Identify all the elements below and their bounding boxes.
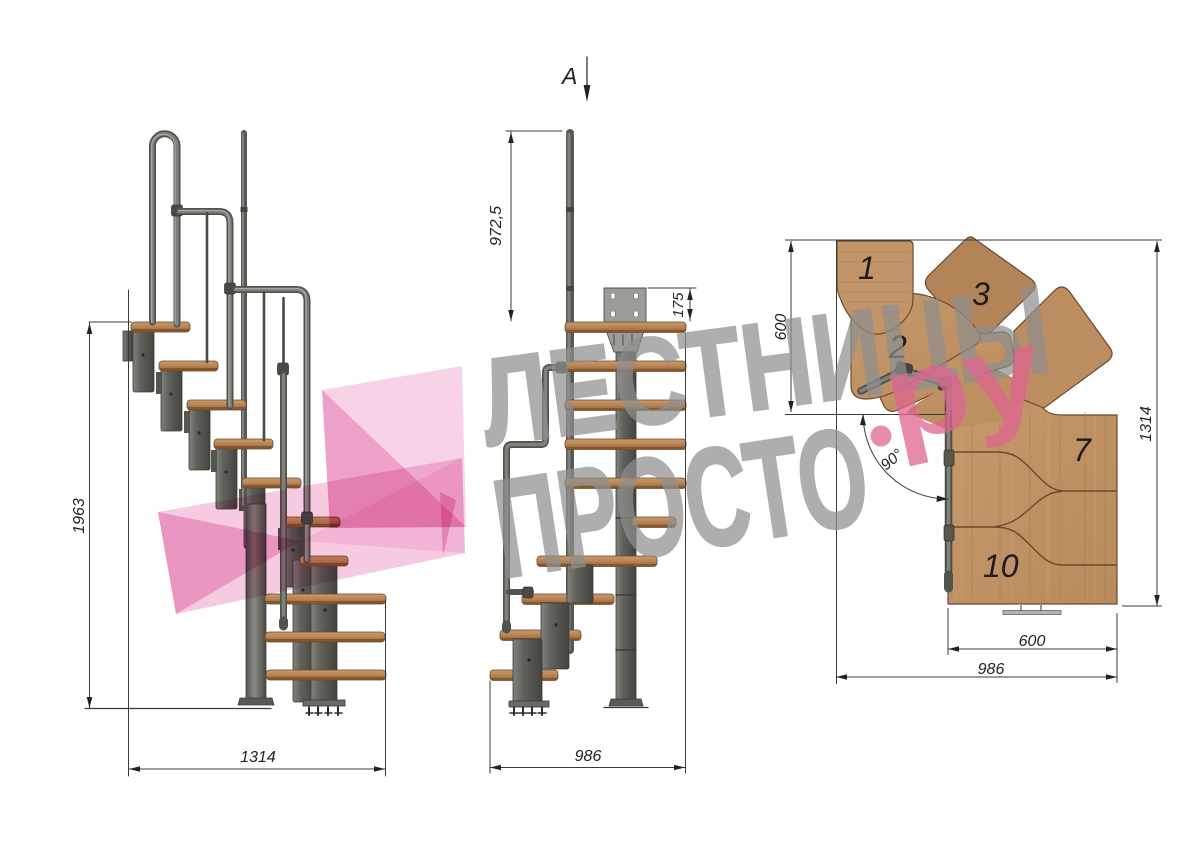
- svg-text:10: 10: [983, 548, 1019, 584]
- svg-text:986: 986: [978, 661, 1005, 678]
- svg-text:1: 1: [858, 250, 876, 286]
- svg-text:7: 7: [1073, 432, 1092, 468]
- svg-text:1314: 1314: [240, 749, 276, 766]
- svg-text:A: A: [560, 63, 577, 89]
- svg-text:600: 600: [1019, 633, 1046, 650]
- svg-text:1314: 1314: [1138, 406, 1155, 442]
- svg-text:972,5: 972,5: [488, 206, 505, 246]
- svg-text:1963: 1963: [71, 498, 88, 534]
- svg-text:986: 986: [575, 748, 602, 765]
